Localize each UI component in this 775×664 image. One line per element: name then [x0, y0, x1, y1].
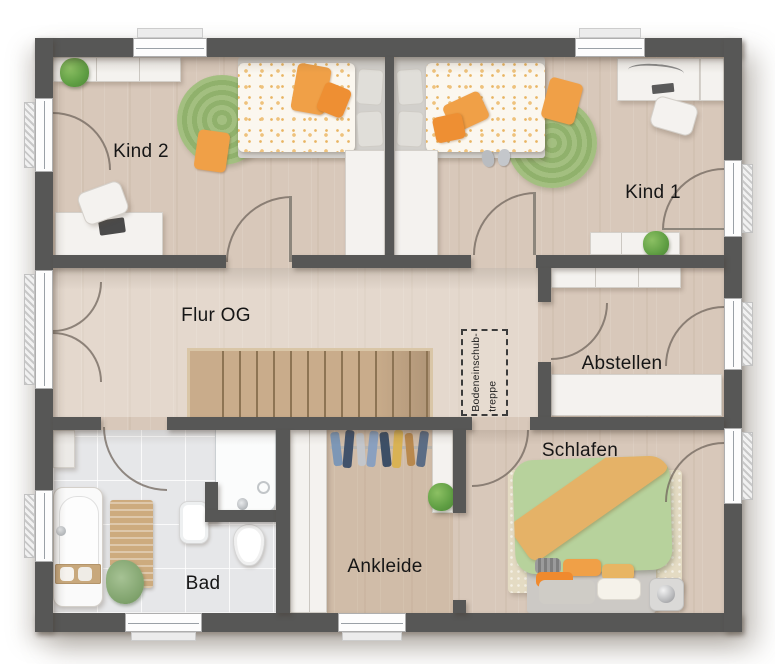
radiator: [24, 494, 35, 558]
clothing-item: [366, 431, 379, 468]
clothing-item: [416, 431, 429, 468]
throw-blanket: [512, 455, 671, 564]
clothing-item: [356, 433, 366, 466]
wall-kids-flur-mid: [292, 255, 471, 268]
sideboard-divider: [96, 58, 97, 81]
clothing-item: [392, 430, 404, 469]
pillow: [356, 68, 384, 106]
pillow: [396, 68, 424, 106]
wall-ankleide-schlafen-upper: [453, 430, 466, 513]
window-sill: [342, 632, 402, 641]
potted-plant: [428, 483, 455, 511]
clothing-item: [330, 432, 343, 467]
sideboard-divider: [621, 233, 622, 254]
pillow: [356, 110, 384, 147]
hanging-clothes: [330, 428, 434, 472]
wall-kind1-abstellen: [536, 255, 724, 268]
kind1-door-leaf: [533, 192, 536, 255]
window-kind1-right: [724, 160, 742, 237]
ankleide-tall-wardrobe: [290, 426, 327, 613]
label-flur: Flur OG: [181, 305, 251, 327]
radiator: [742, 164, 753, 233]
window-kind2-left: [35, 98, 53, 172]
window-bad-bottom: [125, 613, 202, 632]
towel-pile: [106, 560, 144, 604]
bathtub-faucet: [56, 526, 66, 536]
shower-faucet: [237, 498, 248, 510]
pillow: [597, 578, 641, 600]
wardrobe-divider: [309, 427, 310, 612]
window-abstellen-right: [724, 298, 742, 370]
wall-kind2-flur: [53, 255, 226, 268]
window-schlafen-right: [724, 428, 742, 504]
schlafen-duvet: [512, 455, 673, 574]
cube-knob: [657, 585, 675, 603]
abstellen-storage-cabinet: [551, 374, 722, 416]
wall-flur-bad-ankleide: [167, 417, 472, 430]
shower-drain: [257, 481, 270, 494]
toilet-cistern-wall: [205, 510, 276, 522]
window-sill: [579, 28, 641, 38]
kind2-door-leaf: [289, 196, 292, 262]
window-sill: [131, 632, 196, 641]
stair-treads: [207, 351, 430, 417]
label-kind1: Kind 1: [625, 182, 681, 204]
window-kind2-top: [133, 38, 207, 57]
kind1-desk-cabinet: [700, 58, 724, 101]
clothing-item: [405, 433, 416, 467]
window-bad-left: [35, 490, 53, 562]
towel-roll: [78, 567, 92, 581]
label-ankleide: Ankleide: [347, 556, 422, 578]
potted-plant: [60, 58, 89, 87]
kind1-bed: [394, 57, 545, 158]
wall-flur-schlafen: [530, 417, 724, 430]
window-sill: [137, 28, 203, 38]
radiator: [742, 432, 753, 500]
staircase: [187, 348, 433, 417]
attic-hatch-annotation: Bodeneinschub- treppe: [461, 329, 508, 416]
window-flur-left: [35, 270, 53, 389]
radiator: [742, 302, 753, 366]
attic-hatch-label: Bodeneinschub- treppe: [468, 333, 501, 412]
radiator: [24, 102, 35, 168]
pillow: [539, 580, 595, 604]
label-abstellen: Abstellen: [582, 353, 663, 375]
window-kind1-top: [575, 38, 645, 57]
label-bad: Bad: [186, 573, 221, 595]
kind2-bed: [238, 57, 385, 158]
radiator: [24, 274, 35, 385]
bathtub: [53, 487, 103, 607]
wall-flur-abstellen-upper: [538, 268, 551, 302]
clothing-item: [342, 430, 354, 469]
pillow: [396, 110, 424, 147]
window-ankleide-bottom: [338, 613, 406, 632]
kind2-wardrobe: [345, 150, 385, 256]
floor-cushion: [193, 129, 230, 173]
floor-plan: Bodeneinschub- treppe: [0, 0, 775, 664]
bathroom-shelf: [53, 430, 75, 468]
towel-roll: [60, 567, 74, 581]
sideboard-divider: [638, 265, 639, 287]
kind1-wardrobe: [394, 150, 438, 256]
bedside-cube-table: [649, 578, 684, 611]
potted-plant: [643, 231, 669, 257]
kind1-window-leaf: [662, 228, 724, 230]
wall-flur-bad-left: [53, 417, 101, 430]
wall-kind2-kind1: [385, 57, 394, 255]
clothing-item: [379, 432, 392, 468]
label-schlafen: Schlafen: [542, 440, 618, 462]
label-kind2: Kind 2: [113, 141, 169, 163]
wall-bad-ankleide: [276, 430, 290, 613]
wall-ankleide-schlafen-lower: [453, 600, 466, 613]
sideboard-divider: [139, 58, 140, 81]
wall-flur-abstellen-lower: [538, 362, 551, 417]
sideboard-divider: [595, 265, 596, 287]
